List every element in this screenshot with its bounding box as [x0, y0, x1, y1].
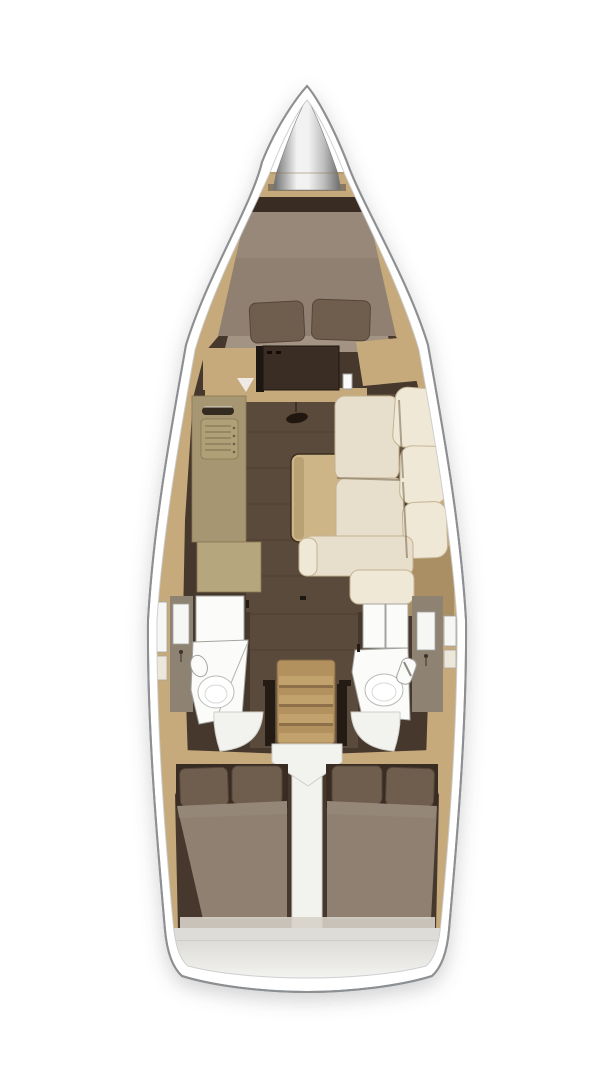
vberth-pillow-right — [311, 299, 370, 341]
starboard-head — [352, 596, 456, 720]
yacht-floorplan — [0, 0, 605, 1080]
aft-berth-foot-trim — [180, 917, 435, 928]
port-pillow-inboard — [232, 766, 282, 804]
companionway-ladder — [277, 660, 335, 744]
galley-aft-cabinet — [197, 542, 261, 592]
port-vanity-faucet — [179, 650, 183, 654]
door-latch-plate — [343, 374, 352, 389]
vberth-head-panel — [238, 197, 376, 214]
port-vanity-mirror — [173, 604, 189, 644]
bulkhead-wood-left — [203, 348, 263, 390]
stbd-hull-hatch — [444, 616, 456, 646]
stbd-vanity-faucet — [424, 654, 428, 658]
engine-trunk — [292, 762, 322, 930]
stbd-head-handle — [357, 644, 360, 652]
stbd-aft-mattress — [327, 801, 437, 919]
aft-cabin-starboard — [326, 764, 438, 919]
ladder-rail-stbd — [337, 684, 347, 746]
vberth-sheet — [236, 212, 378, 258]
settee-corner-bolster — [350, 570, 414, 604]
ladder-rail-port — [265, 684, 275, 746]
galley-sink — [202, 407, 234, 415]
bulkhead-wood-right — [356, 336, 426, 386]
stbd-vanity-mirror — [417, 612, 435, 650]
settee-seat-fwd — [335, 396, 399, 480]
vberth-pillow-left — [249, 301, 305, 344]
stbd-pillow-inboard — [332, 766, 382, 804]
stbd-pillow-outboard — [385, 767, 434, 807]
galley-stove — [201, 419, 238, 459]
stbd-head-door-b — [386, 604, 408, 648]
port-head-door — [196, 596, 244, 642]
port-pillow-outboard — [179, 767, 228, 807]
door-hinge-b — [276, 351, 281, 354]
port-toilet — [198, 676, 234, 708]
transom-band — [158, 928, 456, 941]
stbd-hull-hatch-2 — [444, 650, 456, 668]
galley-counter — [192, 396, 246, 542]
settee-bench-bolster — [299, 538, 317, 576]
cabin-door — [263, 346, 339, 390]
hull-interior — [130, 80, 484, 984]
yacht-floorplan-canvas — [0, 0, 605, 1080]
door-hinge-a — [267, 351, 272, 354]
port-head-handle — [246, 600, 249, 608]
stbd-head-door-a — [363, 604, 385, 648]
table-edge-shade — [294, 457, 304, 539]
companionway-latch — [300, 596, 306, 600]
